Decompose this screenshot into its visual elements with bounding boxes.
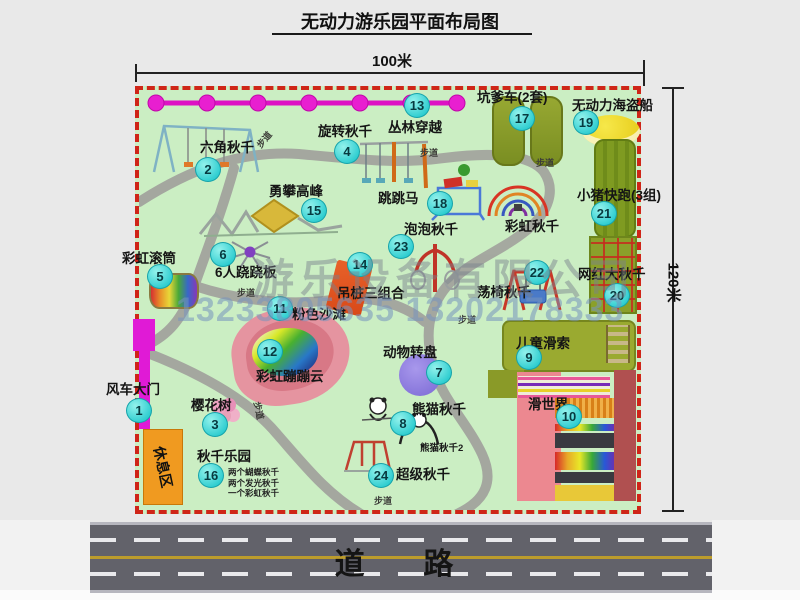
dimension-tick: [135, 64, 137, 82]
attraction-label: 六角秋千: [200, 136, 254, 156]
attraction-number-badge: 7: [426, 360, 452, 385]
attraction-label: 秋千乐园: [197, 445, 251, 465]
walkway-label: 步道: [420, 146, 438, 159]
attraction-label: 超级秋千: [396, 463, 450, 483]
attraction-number-badge: 18: [427, 191, 453, 216]
attraction-number-badge: 21: [591, 201, 617, 226]
attraction-note: 一个彩虹秋千: [228, 487, 279, 499]
dimension-label-height: 120米: [664, 262, 685, 302]
attraction-label: 樱花树: [191, 394, 232, 414]
attraction-label: 彩虹蹦蹦云: [256, 365, 324, 385]
windmill-gate-icon: [133, 319, 155, 351]
attraction-label: 坑爹车(2套): [477, 86, 548, 106]
attraction-label: 勇攀高峰: [269, 180, 323, 200]
dimension-label-width: 100米: [372, 50, 412, 71]
attraction-number-badge: 24: [368, 463, 394, 488]
rotary-swing-icon: [352, 132, 437, 194]
attraction-number-badge: 13: [404, 93, 430, 118]
attraction-number-badge: 3: [202, 412, 228, 437]
attraction-number-badge: 5: [147, 264, 173, 289]
page-title: 无动力游乐园平面布局图: [0, 8, 800, 34]
attraction-label: 彩虹滚筒: [122, 247, 176, 267]
attraction-label: 彩虹秋千: [505, 215, 559, 235]
attraction-sublabel: 熊猫秋千2: [420, 440, 463, 454]
attraction-label: 小猪快跑(3组): [577, 184, 661, 204]
attraction-label: 熊猫秋千: [412, 398, 466, 418]
attraction-number-badge: 17: [509, 106, 535, 131]
rainbow-swing-icon: [484, 174, 552, 220]
attraction-number-badge: 12: [257, 339, 283, 364]
watermark-phone: 13233805635 13202178333: [176, 291, 624, 330]
attraction-number-badge: 2: [195, 157, 221, 182]
slide-world-band-yellow: [555, 485, 617, 501]
road: 道 路: [90, 522, 712, 593]
slide-world-band-dark2: [555, 472, 617, 483]
road-left-margin: [0, 520, 90, 590]
slide-world-shape: [488, 370, 636, 503]
kids-zipline-ladder: [606, 325, 630, 363]
walkway-label: 步道: [536, 156, 554, 169]
attraction-label: 动物转盘: [383, 341, 437, 361]
dimension-tick: [662, 87, 684, 89]
attraction-number-badge: 1: [126, 398, 152, 423]
attraction-label: 丛林穿越: [388, 116, 442, 136]
attraction-number-badge: 19: [573, 110, 599, 135]
rest-area-box: 休息区: [143, 429, 183, 505]
attraction-number-badge: 6: [210, 242, 236, 267]
rest-area-label: 休息区: [149, 444, 177, 489]
attraction-label: 泡泡秋千: [404, 218, 458, 238]
road-right-margin: [712, 520, 800, 590]
attraction-number-badge: 4: [334, 139, 360, 164]
attraction-label: 风车大门: [106, 378, 160, 398]
walkway-label: 步道: [374, 494, 392, 507]
dimension-tick: [662, 510, 684, 512]
attraction-label: 旋转秋千: [318, 120, 372, 140]
slide-world-side: [614, 370, 636, 501]
slide-world-band-rainbow: [555, 452, 617, 470]
attraction-label: 跳跳马: [378, 187, 419, 207]
attraction-number-badge: 8: [390, 411, 416, 436]
attraction-number-badge: 10: [556, 404, 582, 429]
dimension-tick: [643, 60, 645, 86]
road-label: 道 路: [90, 539, 712, 583]
slide-world-band-dark: [555, 433, 617, 448]
dimension-line-top: [136, 72, 644, 74]
attraction-number-badge: 15: [301, 198, 327, 223]
attraction-number-badge: 9: [516, 345, 542, 370]
park-layout-screenshot: 无动力游乐园平面布局图 100米 120米: [0, 0, 800, 600]
attraction-number-badge: 16: [198, 463, 224, 488]
